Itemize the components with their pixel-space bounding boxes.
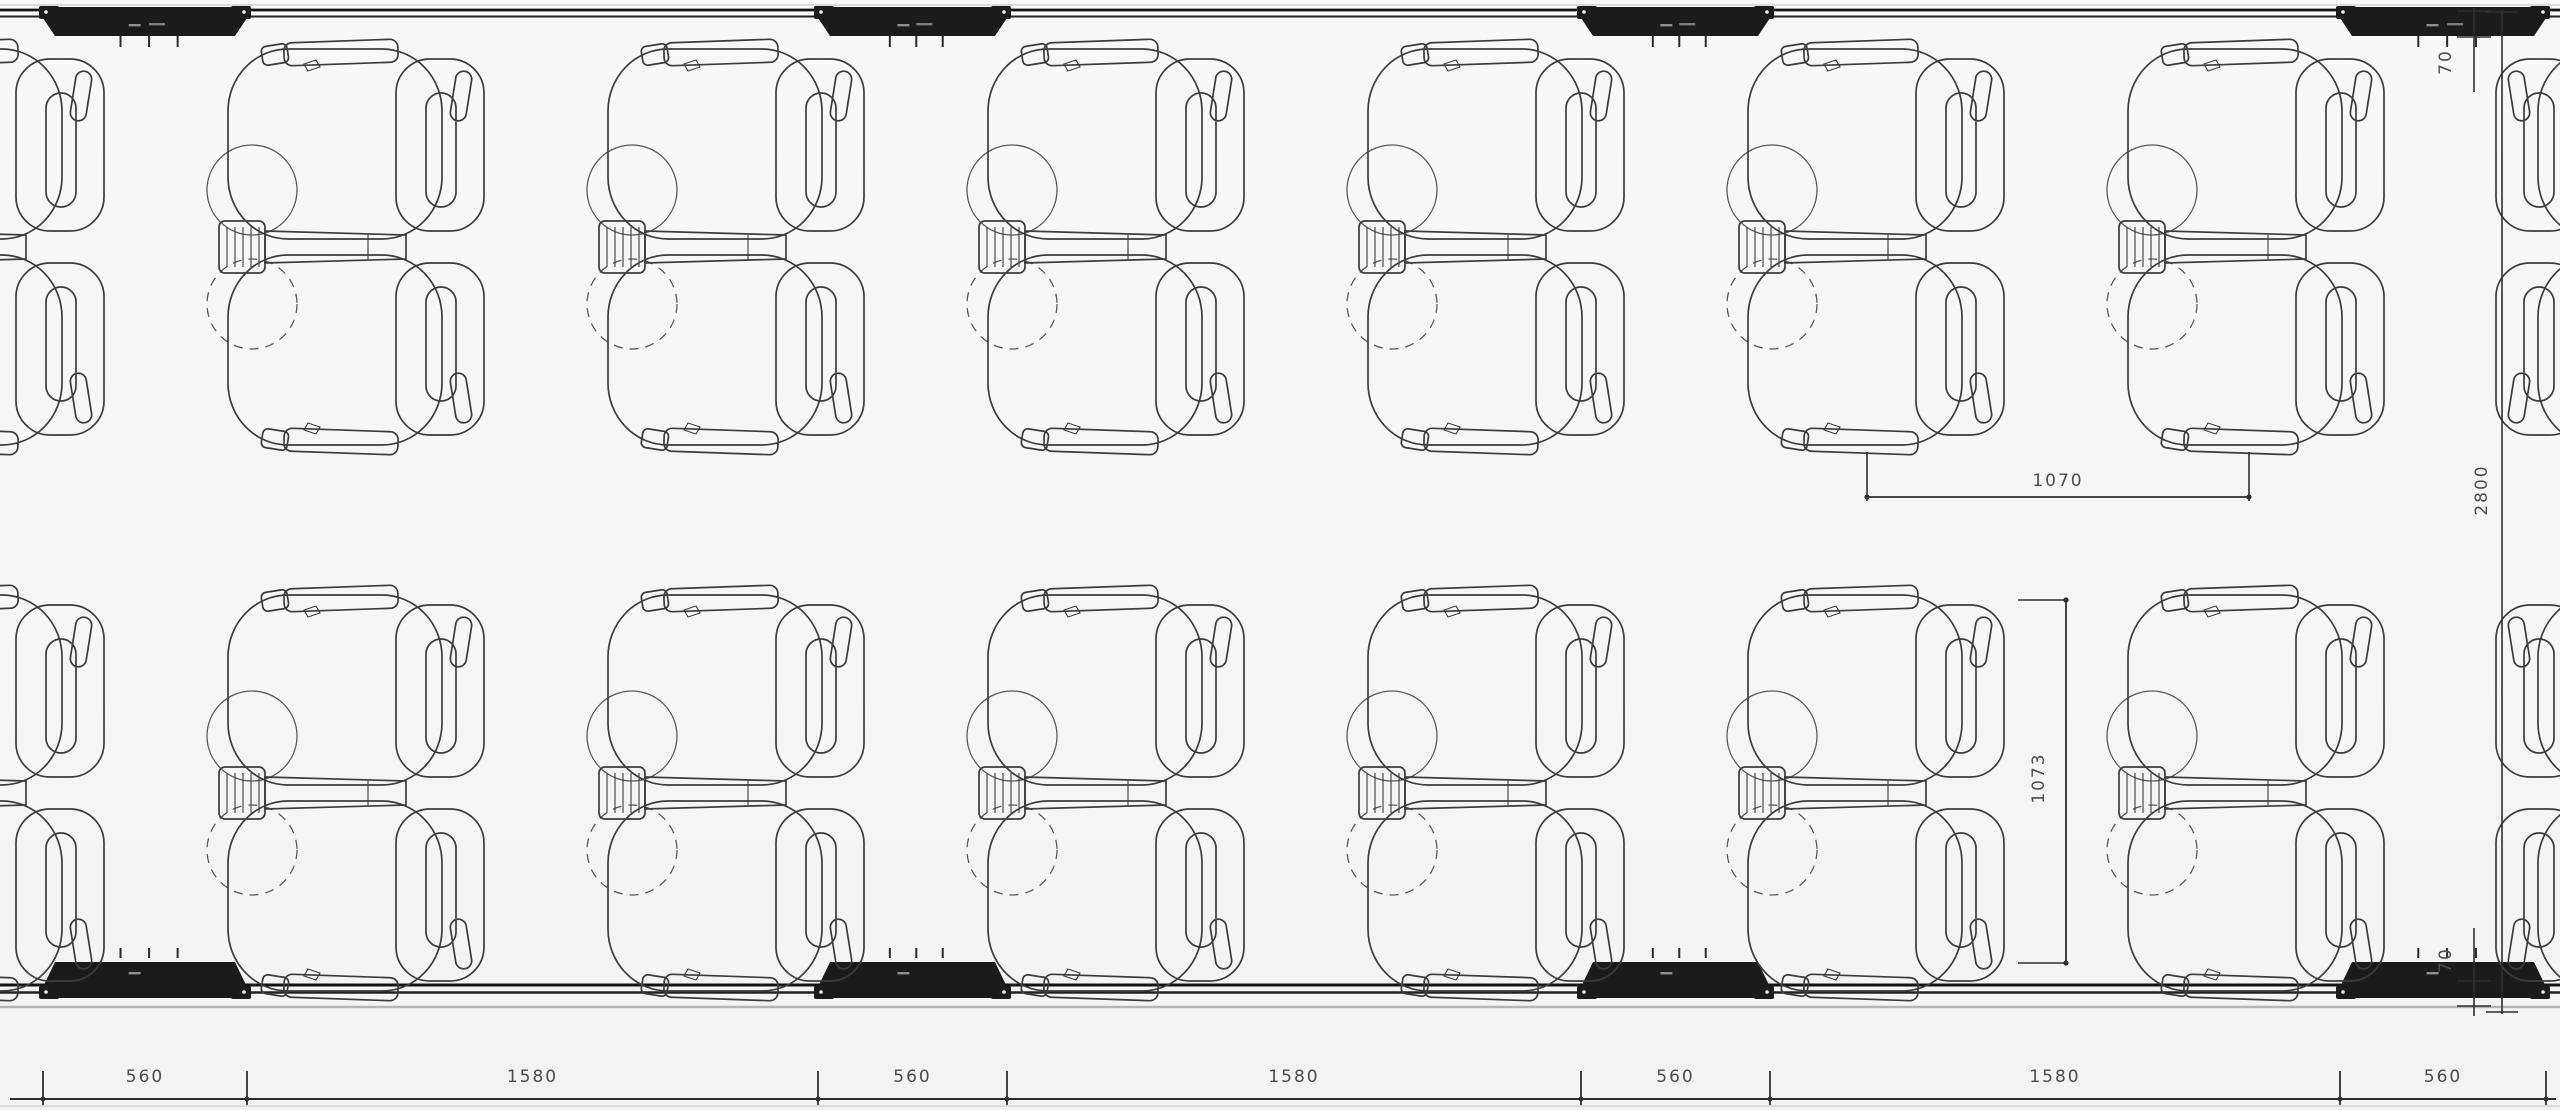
fixture-rivet (2541, 10, 2545, 14)
fixture-marking (129, 972, 141, 974)
fixture-bracket (39, 6, 59, 19)
fixture-bracket (991, 986, 1011, 999)
fixture-marking (897, 24, 909, 26)
fixture-bracket (814, 986, 834, 999)
dim-label-overall-depth: 2800 (2471, 445, 2493, 535)
dim-dot (41, 1097, 46, 1102)
fixture-marking (916, 23, 932, 25)
dim-label-bottom: 1580 (488, 1066, 578, 1088)
fixture-rivet (1765, 10, 1769, 14)
fixture-bracket (231, 986, 251, 999)
floor-plan-canvas: 1070 1073 2800 70 70 5601580560158056015… (0, 0, 2560, 1110)
seat-unit (1727, 585, 2004, 1001)
fixture-rivet (2341, 10, 2345, 14)
fixture-bracket (991, 6, 1011, 19)
dim-label-bottom: 560 (1631, 1066, 1721, 1088)
fixture-marking (1679, 23, 1695, 25)
fixture-bracket (2336, 986, 2356, 999)
dim-dot (2544, 1097, 2549, 1102)
seat-unit (587, 39, 864, 455)
fixture-rivet (44, 10, 48, 14)
dim-label-bottom: 560 (2398, 1066, 2488, 1088)
fixture-bracket (39, 986, 59, 999)
wall-fixture-bottom (818, 962, 1007, 998)
seat-unit (207, 585, 484, 1001)
fixture-bracket (1754, 6, 1774, 19)
fixture-bracket (2530, 986, 2550, 999)
fixture-rivet (44, 990, 48, 994)
fixture-bracket (1754, 986, 1774, 999)
fixture-bracket (1577, 6, 1597, 19)
fixture-marking (1660, 972, 1672, 974)
dim-label-bottom: 560 (868, 1066, 958, 1088)
fixture-marking (149, 23, 165, 25)
dim-label-wall-bottom: 70 (2435, 915, 2457, 1005)
dim-dot (816, 1097, 821, 1102)
fixture-bracket (2336, 6, 2356, 19)
dim-dot (2063, 597, 2068, 602)
seat-unit (2107, 585, 2384, 1001)
fixture-bracket (231, 6, 251, 19)
dim-dot (1864, 494, 1869, 499)
fixture-rivet (2541, 990, 2545, 994)
seat-unit-mirrored (2496, 39, 2560, 455)
fixture-marking (1660, 24, 1672, 26)
seat-unit (1347, 39, 1624, 455)
dim-label-wall-top: 70 (2435, 17, 2457, 107)
fixture-rivet (819, 10, 823, 14)
fixture-rivet (242, 990, 246, 994)
fixture-rivet (1765, 990, 1769, 994)
dim-dot (2338, 1097, 2343, 1102)
fixture-rivet (242, 10, 246, 14)
fixture-bracket (1577, 986, 1597, 999)
dim-label-bottom: 560 (100, 1066, 190, 1088)
fixture-rivet (2341, 990, 2345, 994)
wall-fixture-top (43, 7, 247, 36)
seat-unit (967, 39, 1244, 455)
dim-label-bottom: 1580 (2010, 1066, 2100, 1088)
fixture-rivet (1002, 990, 1006, 994)
seat-unit (1727, 39, 2004, 455)
fixture-marking (129, 24, 141, 26)
seat-unit (0, 585, 104, 1001)
fixture-marking (897, 972, 909, 974)
fixture-rivet (1582, 990, 1586, 994)
fixture-bracket (2530, 6, 2550, 19)
fixture-rivet (1582, 10, 1586, 14)
wall-fixture-top (1581, 7, 1770, 36)
floor-plan-drawing (0, 0, 2560, 1110)
dim-dot (2063, 960, 2068, 965)
seat-unit (587, 585, 864, 1001)
wall-fixture-top (818, 7, 1007, 36)
dim-label-bottom: 1580 (1249, 1066, 1339, 1088)
dim-dot (1005, 1097, 1010, 1102)
dim-dot (245, 1097, 250, 1102)
seat-unit (0, 39, 104, 455)
dim-dot (1579, 1097, 1584, 1102)
dim-dot (1768, 1097, 1773, 1102)
seat-unit (207, 39, 484, 455)
dim-label-seat-pitch: 1070 (2013, 470, 2103, 492)
fixture-rivet (819, 990, 823, 994)
fixture-bracket (814, 6, 834, 19)
seat-unit (2107, 39, 2384, 455)
seat-unit (1347, 585, 1624, 1001)
plan-linework (0, 5, 2560, 1106)
seat-unit (967, 585, 1244, 1001)
seat-unit-mirrored (2496, 585, 2560, 1001)
dim-label-bay-depth: 1073 (2028, 733, 2050, 823)
fixture-rivet (1002, 10, 1006, 14)
dim-dot (2246, 494, 2251, 499)
